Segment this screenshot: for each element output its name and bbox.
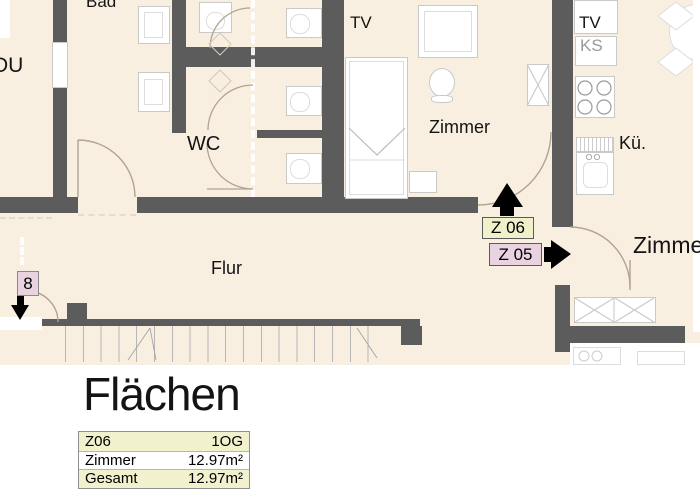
partition-dashed-line <box>251 0 255 197</box>
table-row: Gesamt 12.97m² <box>79 469 249 488</box>
section-title-flaechen: Flächen <box>83 367 240 421</box>
entrance-arrow-down-icon <box>11 293 29 320</box>
toilet <box>286 86 322 116</box>
wall <box>0 197 78 213</box>
nightstand <box>409 171 437 193</box>
counter-unit <box>637 351 685 365</box>
kitchen-sink <box>576 152 614 195</box>
door-arc-wc <box>208 85 253 130</box>
room-label-tv: TV <box>350 14 372 31</box>
entrance-arrow-right-icon <box>544 240 571 269</box>
threshold-dashed-line <box>78 214 136 216</box>
wall-bottom-right <box>570 326 685 343</box>
sink <box>138 72 170 112</box>
wall-kitchen-left <box>552 0 573 227</box>
table-row: Zimmer 12.97m² <box>79 451 249 470</box>
plan-edge <box>693 0 700 332</box>
stair-landing-opening <box>0 317 42 330</box>
badge-z06: Z 06 <box>482 217 534 239</box>
room-label-flur: Flur <box>211 259 242 277</box>
wall <box>257 130 322 138</box>
table-cell-value: 12.97m² <box>188 470 243 487</box>
area-table: Z06 1OG Zimmer 12.97m² Gesamt 12.97m² <box>78 431 250 489</box>
newel-post <box>401 326 422 345</box>
badge-z08: 8 <box>17 271 39 296</box>
floorplan-drawing: Bad DU WC TV Zimmer TV KS Kü. Zimmer Flu… <box>0 0 700 365</box>
chair-back <box>431 95 453 103</box>
room-label-kueche: Kü. <box>619 134 646 152</box>
wall-corridor-top <box>137 197 478 213</box>
stove <box>575 76 615 118</box>
toilet <box>286 153 322 184</box>
entrance-arrow-up-icon <box>492 183 523 216</box>
table-cell-value: 1OG <box>211 433 243 450</box>
threshold-dashed-line <box>0 217 52 219</box>
table-cell-name: Z06 <box>85 433 111 450</box>
washbasin-unit <box>573 347 621 365</box>
badge-z05: Z 05 <box>489 243 542 266</box>
door-arc <box>78 140 135 197</box>
wall <box>182 47 330 67</box>
table-cell-value: 12.97m² <box>188 452 243 469</box>
table-row: Z06 1OG <box>79 432 249 451</box>
wall <box>53 88 67 197</box>
wall <box>322 0 344 197</box>
door-arc-z05 <box>570 227 630 287</box>
room-label-wc: WC <box>187 134 220 154</box>
room-label-du: DU <box>0 55 23 76</box>
room-label-tv-kitchen: TV <box>579 14 601 31</box>
window <box>52 42 68 88</box>
newel-post <box>67 303 87 325</box>
dish-drainer <box>576 137 614 152</box>
bed <box>345 57 408 199</box>
wardrobe <box>527 64 549 106</box>
toilet <box>286 8 322 38</box>
room-label-ks: KS <box>580 37 603 54</box>
chair <box>429 68 455 97</box>
table-cell-name: Gesamt <box>85 470 138 487</box>
plan-edge <box>0 0 10 38</box>
door-arc-z06 <box>478 132 551 205</box>
vent-symbol <box>209 70 231 92</box>
partition-dashed-line <box>20 237 24 265</box>
wall <box>53 0 67 42</box>
room-label-zimmer-right: Zimmer <box>633 234 700 257</box>
room-label-bad: Bad <box>86 0 116 10</box>
table-cell-name: Zimmer <box>85 452 136 469</box>
stair-stringer-wall <box>42 319 420 326</box>
wardrobe-double <box>574 297 656 323</box>
floorplan-page: Bad DU WC TV Zimmer TV KS Kü. Zimmer Flu… <box>0 0 700 500</box>
room-label-zimmer-center: Zimmer <box>429 118 490 136</box>
wall <box>555 285 570 352</box>
stair-treads <box>65 326 385 362</box>
desk <box>418 5 478 58</box>
toilet <box>199 2 232 33</box>
sink <box>138 6 170 44</box>
